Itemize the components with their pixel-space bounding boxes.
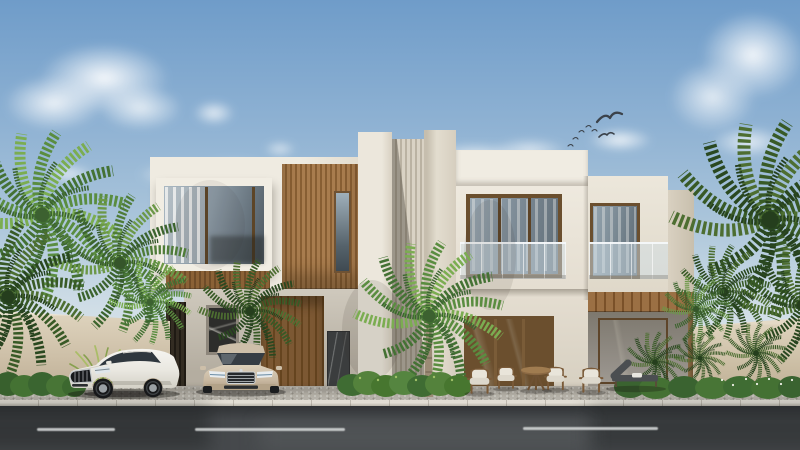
scene-overlay [0, 0, 800, 450]
palm-cluster-left [0, 131, 301, 373]
villa-exterior-rendering [0, 0, 800, 450]
birds [568, 113, 622, 146]
palm-group-right [662, 121, 800, 366]
outdoor-furniture [465, 363, 666, 397]
armchair [493, 368, 519, 392]
hedge-center [337, 371, 472, 397]
armchair [577, 369, 606, 396]
